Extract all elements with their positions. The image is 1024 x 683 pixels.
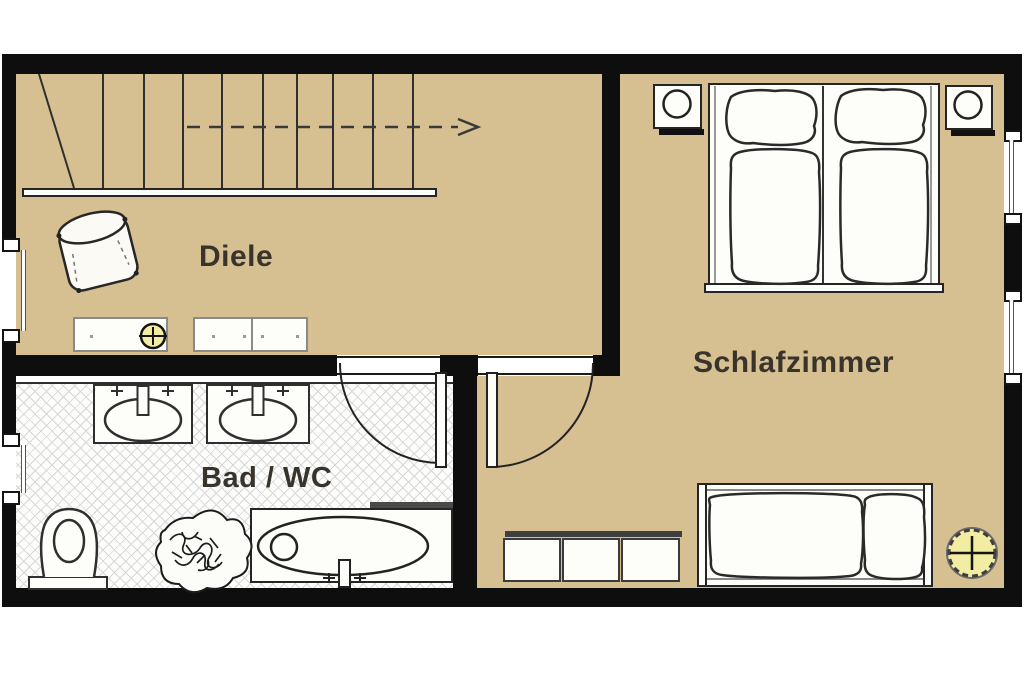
room-label-schlafzimmer: Schlafzimmer <box>693 348 894 378</box>
nightstand-left <box>653 84 702 129</box>
bed-rail-left <box>714 86 716 283</box>
nightstand-right-shadow <box>951 130 995 136</box>
sideboard-right-divider <box>251 318 253 351</box>
toilet-pedestal <box>28 576 108 590</box>
room-diele-floor <box>16 74 602 355</box>
wall-corner-bed-door <box>593 355 620 376</box>
nightstand-right <box>945 85 993 130</box>
daybed-board-left <box>697 483 707 587</box>
window-left-2-glass <box>21 445 26 493</box>
lowboard-module-1 <box>503 538 561 582</box>
double-bed-frame <box>708 83 940 292</box>
wall-diele-schlafzimmer <box>602 74 620 376</box>
window-right-2-glass <box>1009 300 1014 375</box>
daybed-rail-bottom <box>707 578 923 580</box>
schlafzimmer-door-threshold <box>478 356 593 375</box>
wall-diele-bad <box>16 355 337 376</box>
sink-vanity-left <box>93 384 193 444</box>
window-right-1-jamb-bottom <box>1004 213 1022 225</box>
daybed-rail-top <box>707 489 923 491</box>
sink-vanity-right <box>206 384 310 444</box>
room-label-diele: Diele <box>199 242 273 272</box>
wall-left-lower <box>2 505 16 607</box>
bad-door-threshold <box>337 356 440 375</box>
window-left-1-glass <box>21 250 26 331</box>
bed-center-divider <box>822 86 824 285</box>
window-left-1-jamb-bottom <box>2 329 20 343</box>
wall-bottom <box>2 588 1022 607</box>
sideboard-left <box>73 317 168 352</box>
daybed-frame <box>697 483 933 587</box>
window-left-2-jamb-bottom <box>2 491 20 505</box>
wall-pillar-between-doors <box>440 355 478 376</box>
wall-bad-schlafzimmer <box>453 376 477 588</box>
window-right-2-jamb-bottom <box>1004 373 1022 385</box>
sideboard-handle <box>90 335 93 338</box>
wall-right-upper <box>1004 54 1022 130</box>
window-right-1-glass <box>1009 140 1014 215</box>
sideboard-handle <box>212 335 215 338</box>
lowboard-shadow <box>505 531 682 537</box>
window-left-1-jamb-top <box>2 238 20 252</box>
bed-foot-board <box>704 283 944 293</box>
room-label-bad-wc: Bad / WC <box>201 464 332 493</box>
bad-wall-facing-strip <box>16 376 453 384</box>
lowboard-module-2 <box>562 538 620 582</box>
daybed-board-right <box>923 483 933 587</box>
lowboard-module-3 <box>621 538 680 582</box>
bed-rail-right <box>930 86 932 283</box>
wall-left-upper <box>2 54 16 238</box>
nightstand-left-shadow <box>659 129 704 135</box>
wall-right-lower <box>1004 385 1022 607</box>
wall-left-middle <box>2 343 16 433</box>
bathtub <box>250 508 453 583</box>
sideboard-handle <box>296 335 299 338</box>
wall-top <box>2 54 1022 74</box>
wall-right-middle <box>1004 225 1022 290</box>
floor-plan: Diele Bad / WC Schlafzimmer <box>0 0 1024 683</box>
window-left-2-jamb-top <box>2 433 20 447</box>
sideboard-handle <box>261 335 264 338</box>
staircase-stringer <box>22 188 437 197</box>
sideboard-handle <box>243 335 246 338</box>
